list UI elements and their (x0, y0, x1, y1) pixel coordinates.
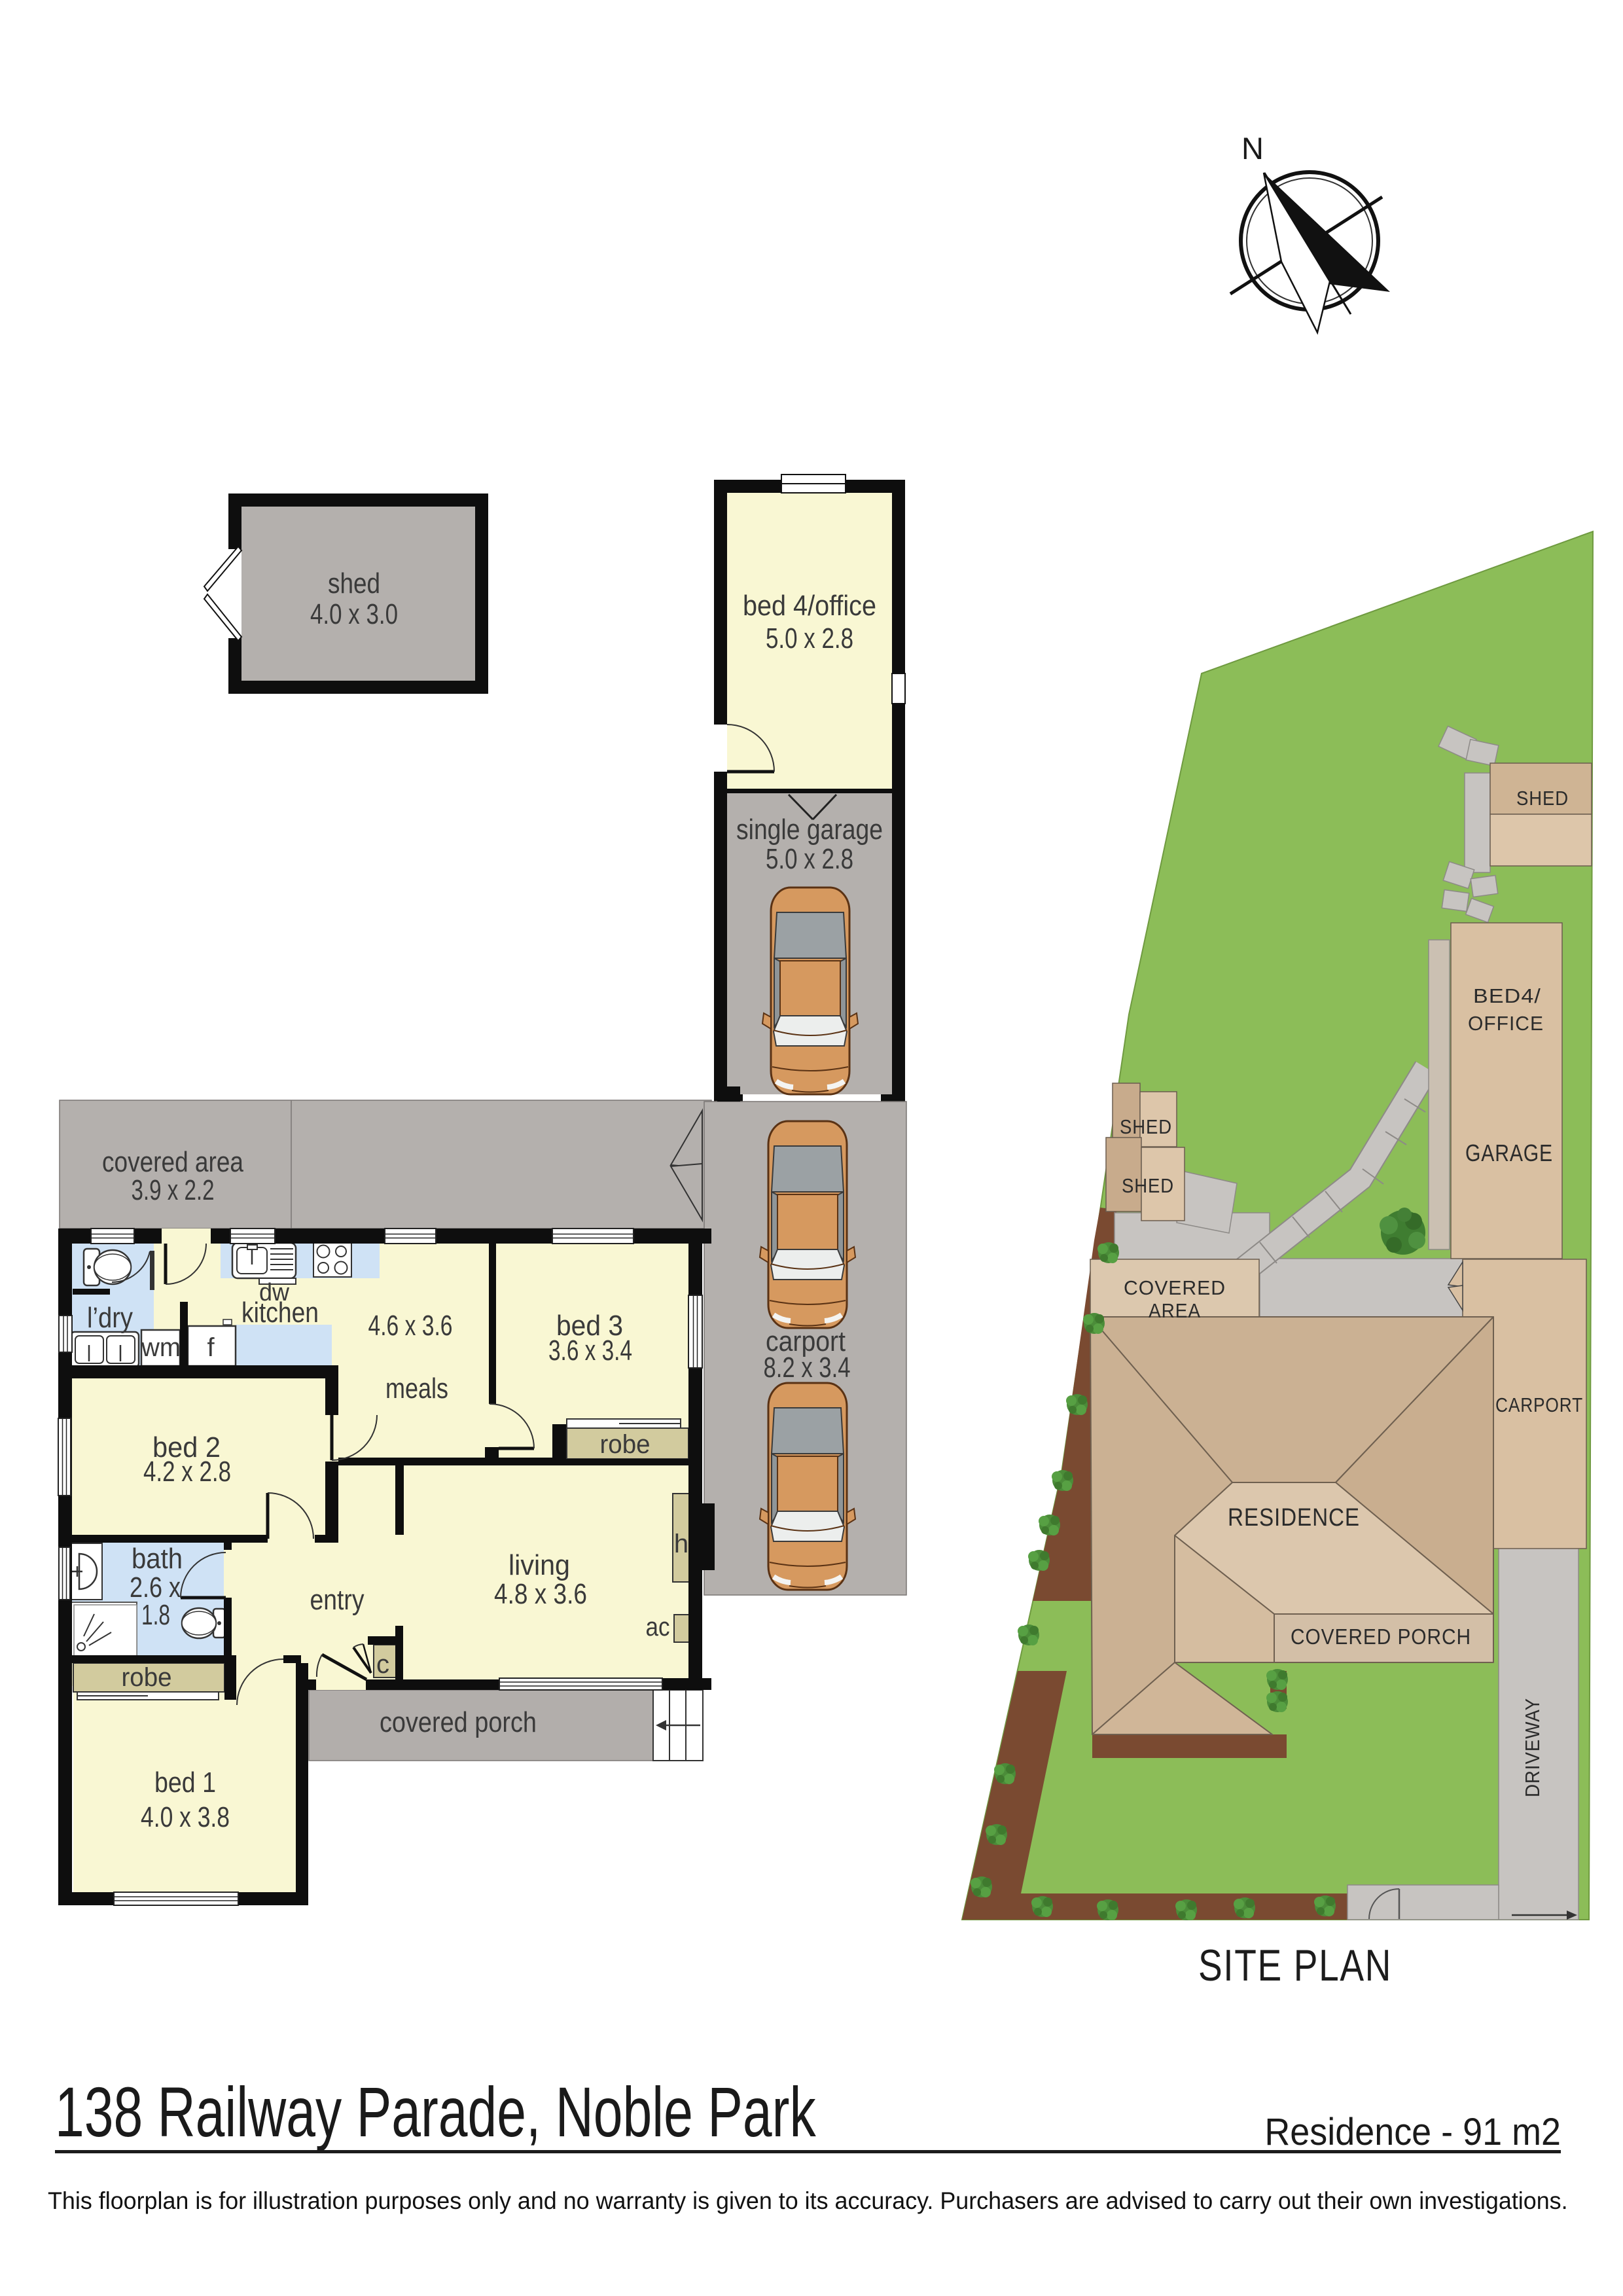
svg-text:Residence - 91 m2: Residence - 91 m2 (1264, 2110, 1561, 2153)
svg-text:This floorplan is for illustra: This floorplan is for illustration purpo… (48, 2187, 1568, 2215)
svg-text:entry: entry (310, 1584, 365, 1616)
svg-text:COVERED PORCH: COVERED PORCH (1291, 1624, 1471, 1649)
svg-text:OFFICE: OFFICE (1468, 1012, 1544, 1035)
svg-text:h: h (674, 1530, 688, 1558)
svg-text:RESIDENCE: RESIDENCE (1228, 1504, 1360, 1532)
svg-text:meals: meals (385, 1372, 448, 1405)
svg-text:bed 4/office: bed 4/office (743, 590, 876, 622)
svg-text:4.6 x 3.6: 4.6 x 3.6 (368, 1310, 453, 1342)
svg-text:N: N (1241, 131, 1264, 166)
svg-text:4.8 x 3.6: 4.8 x 3.6 (494, 1578, 587, 1610)
svg-text:robe: robe (122, 1663, 172, 1692)
svg-text:f: f (207, 1333, 215, 1362)
svg-text:GARAGE: GARAGE (1465, 1139, 1553, 1166)
svg-text:bath: bath (132, 1543, 183, 1575)
svg-text:covered area: covered area (102, 1146, 243, 1178)
svg-text:SHED: SHED (1120, 1115, 1172, 1138)
svg-text:5.0 x 2.8: 5.0 x 2.8 (766, 843, 853, 875)
svg-text:SHED: SHED (1516, 787, 1569, 810)
svg-text:covered porch: covered porch (380, 1706, 537, 1738)
svg-text:ac: ac (646, 1613, 670, 1641)
svg-text:4.0 x 3.0: 4.0 x 3.0 (310, 598, 398, 630)
svg-text:l’dry: l’dry (87, 1302, 133, 1334)
svg-text:c: c (376, 1650, 389, 1679)
svg-text:robe: robe (600, 1430, 651, 1459)
svg-text:3.6 x 3.4: 3.6 x 3.4 (548, 1335, 632, 1367)
svg-text:COVERED: COVERED (1124, 1276, 1226, 1299)
svg-text:4.0 x 3.8: 4.0 x 3.8 (141, 1801, 230, 1833)
svg-text:138 Railway Parade, Noble Park: 138 Railway Parade, Noble Park (55, 2073, 816, 2152)
svg-text:wm: wm (141, 1333, 181, 1362)
svg-text:BED4/: BED4/ (1473, 984, 1541, 1007)
svg-text:shed: shed (328, 567, 380, 600)
svg-text:SHED: SHED (1122, 1174, 1174, 1197)
svg-text:DRIVEWAY: DRIVEWAY (1521, 1698, 1544, 1797)
svg-text:3.9 x 2.2: 3.9 x 2.2 (132, 1174, 215, 1206)
svg-text:single garage: single garage (736, 814, 883, 846)
svg-text:CARPORT: CARPORT (1495, 1393, 1583, 1416)
svg-text:5.0 x 2.8: 5.0 x 2.8 (766, 622, 853, 655)
svg-text:bed 1: bed 1 (154, 1767, 216, 1799)
svg-text:living: living (508, 1549, 570, 1581)
svg-text:8.2 x 3.4: 8.2 x 3.4 (764, 1352, 851, 1384)
svg-text:1.8: 1.8 (141, 1599, 170, 1631)
svg-text:4.2 x 2.8: 4.2 x 2.8 (143, 1456, 231, 1488)
svg-text:kitchen: kitchen (241, 1297, 319, 1329)
svg-text:AREA: AREA (1149, 1299, 1201, 1322)
svg-text:SITE PLAN: SITE PLAN (1198, 1941, 1392, 1991)
